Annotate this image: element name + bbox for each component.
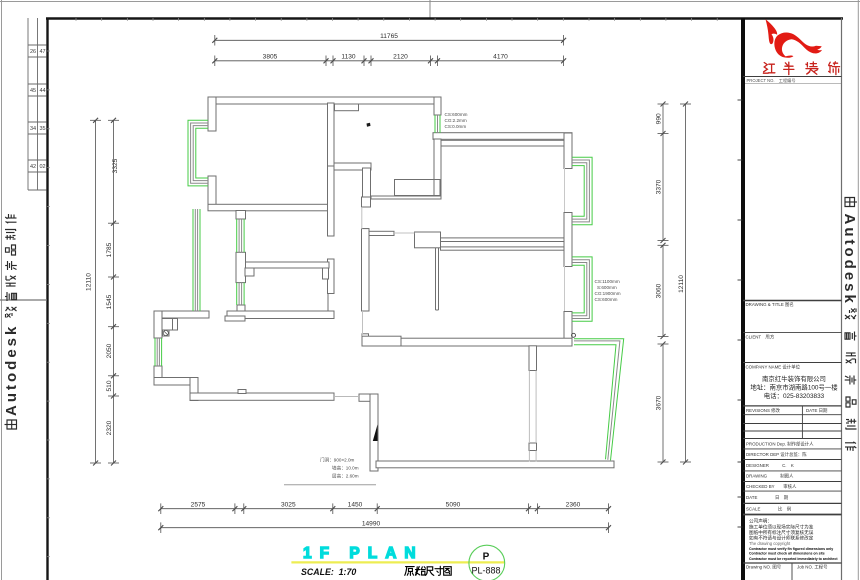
svg-text:Contractor must be reported im: Contractor must be reported immediately … [749,557,838,561]
svg-text:4170: 4170 [493,54,508,61]
svg-text:3670: 3670 [656,395,663,410]
svg-text:REVISIONS 修改: REVISIONS 修改 [746,407,781,414]
svg-text:11765: 11765 [380,33,398,40]
svg-text:12110: 12110 [678,275,685,293]
svg-text:2360: 2360 [566,502,581,509]
svg-text:CS:1100mm: CS:1100mm [595,279,620,284]
svg-text:1545: 1545 [106,294,113,309]
svg-text:CG:2.2mm: CG:2.2mm [445,118,467,123]
svg-text:The drawing copyright: The drawing copyright [749,541,791,546]
svg-text:47: 47 [40,49,46,55]
svg-text:3325: 3325 [112,158,119,173]
svg-text:02: 02 [40,164,46,170]
svg-text:PROJECT NO. 工程编号: PROJECT NO. 工程编号 [747,77,796,84]
svg-text:CS:600mm: CS:600mm [595,297,618,302]
svg-text:Contractor must check all dime: Contractor must check all dimensions on … [749,552,825,556]
svg-text:Autodesk: Autodesk [841,214,858,306]
svg-text:PRODUCTION Dep. 制作部设计人: PRODUCTION Dep. 制作部设计人 [746,441,814,448]
svg-text:3025: 3025 [281,502,296,509]
svg-text:DIRECTOR DEP 设计总监：陈: DIRECTOR DEP 设计总监：陈 [746,451,807,458]
svg-text:电话：025-83203833: 电话：025-83203833 [764,391,825,400]
svg-text:26: 26 [30,49,36,55]
svg-text:2050: 2050 [106,343,113,358]
svg-text:35: 35 [40,126,46,132]
svg-text:墙高：10.0m: 墙高：10.0m [332,465,359,472]
svg-text:P: P [483,552,490,563]
svg-text:Contractor must verify fin fig: Contractor must verify fin figured dimen… [749,547,833,551]
svg-text:1450: 1450 [348,502,363,509]
svg-text:COMPANY NAME 设计单位: COMPANY NAME 设计单位 [746,364,801,371]
svg-text:DRAWING & TITLE 图名: DRAWING & TITLE 图名 [746,301,794,308]
svg-text:CG:1900mm: CG:1900mm [595,291,621,296]
svg-text:SCALE 比 例: SCALE 比 例 [746,506,792,513]
svg-text:1F PLAN: 1F PLAN [303,545,424,562]
svg-text:CS:600mm: CS:600mm [445,112,468,117]
svg-text:CHECKED BY 审核人: CHECKED BY 审核人 [746,483,797,490]
svg-text:45: 45 [30,88,36,94]
svg-text:2575: 2575 [191,502,206,509]
svg-text:地址：南京市湖南路100号一楼: 地址：南京市湖南路100号一楼 [750,383,838,392]
svg-text:1785: 1785 [106,242,113,257]
svg-text:2320: 2320 [106,420,113,435]
svg-text:层高：2.60m: 层高：2.60m [332,473,359,480]
svg-text:Job NO. 工程号: Job NO. 工程号 [797,564,828,571]
svg-text:南京红牛装饰有限公司: 南京红牛装饰有限公司 [762,374,826,383]
svg-text:CS:0.0mm: CS:0.0mm [445,124,467,129]
svg-text:3060: 3060 [656,283,663,298]
svg-text:3370: 3370 [656,179,663,194]
svg-text:PL-888: PL-888 [471,566,500,576]
svg-text:34: 34 [30,126,36,132]
svg-text:CLIENT 甩方: CLIENT 甩方 [746,334,775,341]
svg-text:S:600mm: S:600mm [597,285,617,290]
svg-text:5090: 5090 [446,502,461,509]
svg-text:门洞：900×2.0m: 门洞：900×2.0m [320,457,355,464]
svg-text:2120: 2120 [393,54,408,61]
svg-text:3805: 3805 [263,54,278,61]
svg-text:SCALE: 1:70: SCALE: 1:70 [301,567,356,577]
svg-text:990: 990 [656,113,663,124]
svg-text:510: 510 [106,380,113,391]
svg-text:14990: 14990 [362,521,381,528]
svg-text:42: 42 [30,164,36,170]
svg-text:Autodesk: Autodesk [3,324,20,416]
svg-text:DESIGNER C. K: DESIGNER C. K [746,463,794,468]
svg-text:1130: 1130 [341,54,356,61]
svg-text:12110: 12110 [85,273,92,291]
svg-text:DRAWING 制图人: DRAWING 制图人 [746,473,794,480]
svg-text:44: 44 [40,88,46,94]
